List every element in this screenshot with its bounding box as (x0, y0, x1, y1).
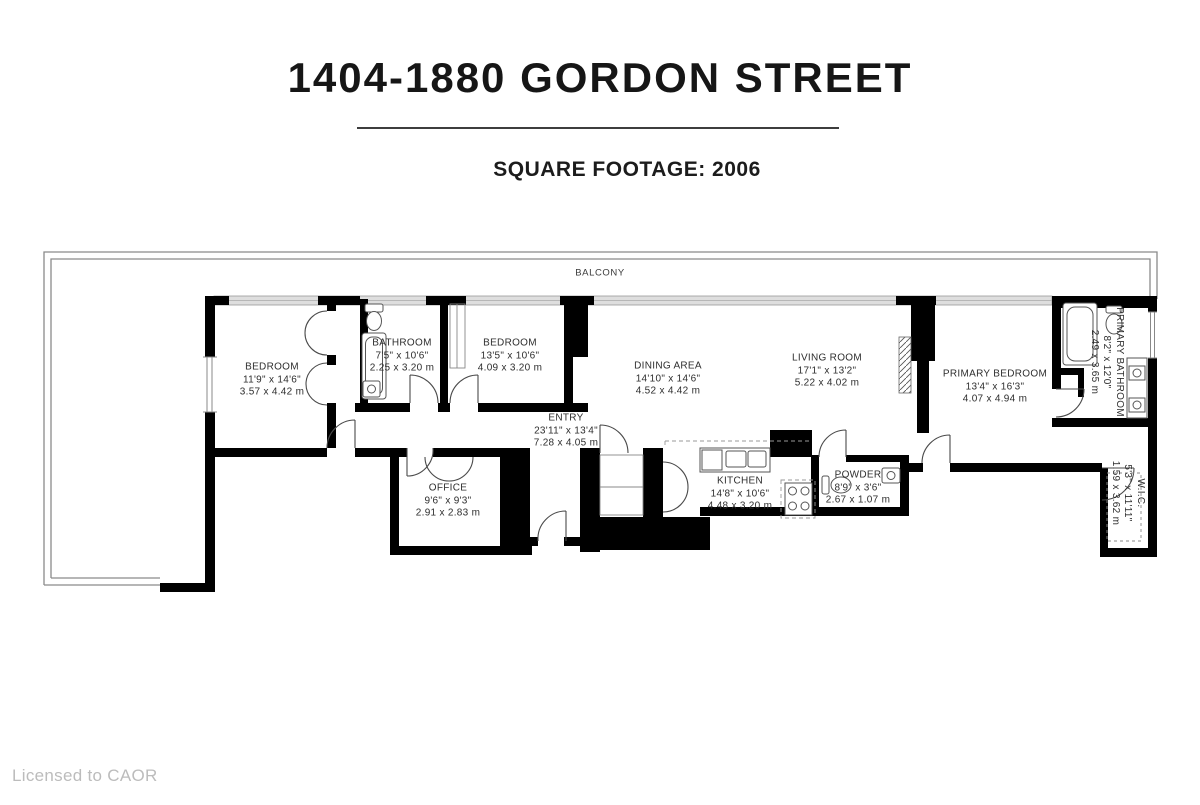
media-wall-hatch (899, 337, 911, 393)
room-dim-metric: 7.28 x 4.05 m (534, 437, 599, 450)
stove-icon (785, 483, 812, 515)
room-name: DINING AREA (634, 360, 702, 373)
room-dim-imperial: 13'5" x 10'6" (478, 350, 543, 363)
room-name: KITCHEN (708, 475, 773, 488)
room-dim-imperial: 9'6" x 9'3" (416, 495, 481, 508)
room-label-wic: W.I.C. 5'3" x 11'11" 1.59 x 3.62 m (1108, 461, 1146, 526)
room-name: PRIMARY BATHROOM (1112, 307, 1125, 417)
room-dim-metric: 2.91 x 2.83 m (416, 507, 481, 520)
room-label-primary-bedroom: PRIMARY BEDROOM 13'4" x 16'3" 4.07 x 4.9… (943, 368, 1047, 406)
room-name: BEDROOM (240, 361, 305, 374)
room-dim-metric: 2.49 x 3.65 m (1087, 307, 1100, 417)
room-name: PRIMARY BEDROOM (943, 368, 1047, 381)
room-dim-imperial: 17'1" x 13'2" (792, 365, 862, 378)
room-dim-imperial: 11'9" x 14'6" (240, 374, 305, 387)
room-dim-imperial: 14'8" x 10'6" (708, 488, 773, 501)
room-dim-imperial: 8'2" x 12'0" (1100, 307, 1113, 417)
room-dim-metric: 2.67 x 1.07 m (826, 494, 891, 507)
room-label-bedroom-2: BEDROOM 13'5" x 10'6" 4.09 x 3.20 m (478, 337, 543, 375)
room-dim-imperial: 14'10" x 14'6" (634, 373, 702, 386)
room-name: POWDER (826, 469, 891, 482)
room-dim-imperial: 13'4" x 16'3" (943, 381, 1047, 394)
room-label-living-room: LIVING ROOM 17'1" x 13'2" 5.22 x 4.02 m (792, 352, 862, 390)
room-label-kitchen: KITCHEN 14'8" x 10'6" 4.48 x 3.20 m (708, 475, 773, 513)
room-dim-metric: 4.09 x 3.20 m (478, 362, 543, 375)
room-label-entry: ENTRY 23'11" x 13'4" 7.28 x 4.05 m (534, 412, 599, 450)
room-name: LIVING ROOM (792, 352, 862, 365)
room-name: OFFICE (416, 482, 481, 495)
room-label-office: OFFICE 9'6" x 9'3" 2.91 x 2.83 m (416, 482, 481, 520)
room-dim-imperial: 7'5" x 10'6" (370, 350, 435, 363)
room-dim-metric: 2.25 x 3.20 m (370, 362, 435, 375)
room-name: BATHROOM (370, 337, 435, 350)
room-dim-metric: 1.59 x 3.62 m (1108, 461, 1121, 526)
room-label-bedroom-1: BEDROOM 11'9" x 14'6" 3.57 x 4.42 m (240, 361, 305, 399)
room-name: W.I.C. (1133, 461, 1146, 526)
floorplan-page: 1404-1880 GORDON STREET SQUARE FOOTAGE: … (0, 0, 1200, 805)
room-name: ENTRY (534, 412, 599, 425)
balcony-label: BALCONY (575, 268, 625, 279)
room-dim-metric: 3.57 x 4.42 m (240, 386, 305, 399)
room-dim-metric: 4.07 x 4.94 m (943, 393, 1047, 406)
vanity-double-sink-icon (1127, 358, 1147, 418)
room-dim-imperial: 5'3" x 11'11" (1121, 461, 1134, 526)
kitchen-counter (700, 448, 770, 472)
room-dim-metric: 5.22 x 4.02 m (792, 377, 862, 390)
room-dim-imperial: 23'11" x 13'4" (534, 425, 599, 438)
license-watermark: Licensed to CAOR (12, 766, 158, 786)
room-dim-metric: 4.48 x 3.20 m (708, 500, 773, 513)
room-label-dining-area: DINING AREA 14'10" x 14'6" 4.52 x 4.42 m (634, 360, 702, 398)
room-label-primary-bathroom: PRIMARY BATHROOM 8'2" x 12'0" 2.49 x 3.6… (1087, 307, 1125, 417)
room-dim-metric: 4.52 x 4.42 m (634, 385, 702, 398)
room-name: BEDROOM (478, 337, 543, 350)
sink-icon (363, 381, 380, 397)
room-label-bathroom: BATHROOM 7'5" x 10'6" 2.25 x 3.20 m (370, 337, 435, 375)
toilet-icon (365, 304, 383, 331)
walls (160, 296, 1157, 592)
room-dim-imperial: 8'9" x 3'6" (826, 482, 891, 495)
room-label-powder: POWDER 8'9" x 3'6" 2.67 x 1.07 m (826, 469, 891, 507)
